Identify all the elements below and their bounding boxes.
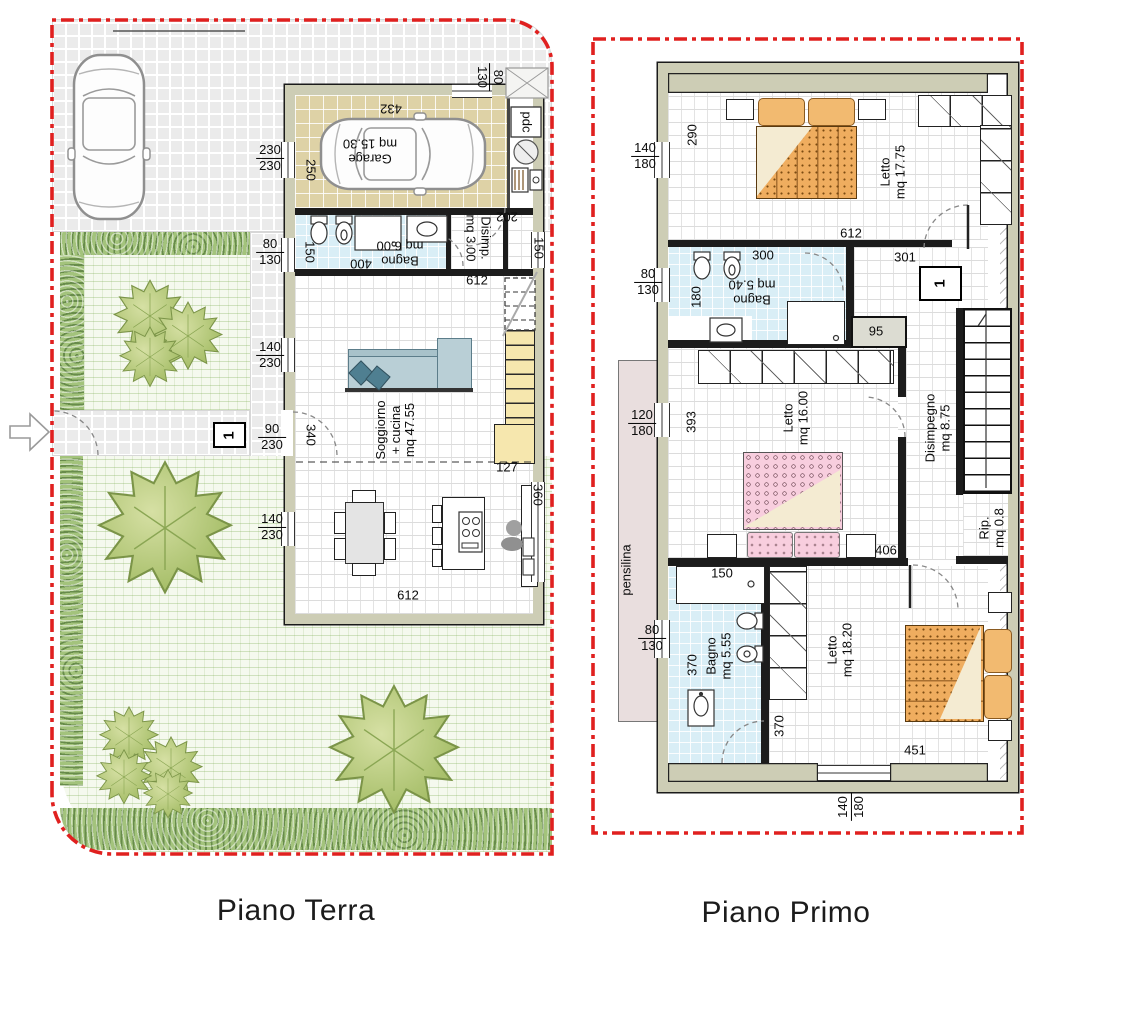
gf-garage-label: Garagemq 15.30 — [343, 136, 397, 165]
gf-wall-bagno-living — [295, 269, 533, 276]
ff-top-wall-band — [668, 73, 988, 93]
dim-ff-room3-width: 451 — [904, 744, 926, 759]
dim-gf-garage-width: 432 — [380, 101, 402, 116]
dim-ff-ward-370: 370 — [773, 715, 788, 737]
ff-pensilina-label: pensilina — [620, 544, 635, 595]
ff-door-number-box: 1 — [919, 266, 962, 301]
room-name: Disimpegno — [923, 394, 938, 463]
gf-kitchen-island — [442, 497, 485, 570]
ground-floor-title: Piano Terra — [217, 894, 375, 928]
dim-ff-win-bottom: 140180 — [836, 793, 866, 821]
dim-ff-room2-depth: 393 — [685, 411, 700, 433]
gf-sofa-chaise — [437, 338, 472, 390]
room-area: mq 17.75 — [893, 145, 908, 199]
gf-chair — [384, 512, 396, 534]
dim-a: 80 — [634, 267, 662, 282]
dim-a: 230 — [256, 143, 284, 158]
floorplan-canvas: 80130 432 230230 250 pdc Garagemq 15.30 … — [0, 0, 1145, 1009]
ff-wall-letto2-south — [668, 558, 908, 566]
dim-b: 230 — [256, 355, 284, 371]
ff-bed3-pillow — [984, 629, 1012, 673]
dim-ff-west2-80-130: 80130 — [638, 623, 666, 653]
dim-b: 180 — [851, 793, 867, 821]
dim-gf-drive-230-230: 230230 — [256, 143, 284, 173]
ff-wall-letto1-south — [668, 240, 952, 247]
gf-pdc-label: pdc — [519, 112, 534, 133]
dim-ff-west-80-130: 80130 — [634, 267, 662, 297]
ff-window-south — [818, 765, 890, 781]
ff-disimpegno-label: Disimpegnomq 8.75 — [923, 394, 952, 463]
dim-ff-room1-depth: 290 — [686, 124, 701, 146]
ff-letto2-wardrobe — [698, 350, 894, 384]
gf-stool — [432, 549, 442, 567]
room-name: Soggiorno — [374, 400, 389, 459]
dim-b: 180 — [628, 423, 656, 439]
dim-a: 80 — [638, 623, 666, 638]
room-area: mq 3.00 — [463, 215, 478, 262]
dim-gf-east-360: 360 — [530, 484, 545, 506]
gf-chair — [352, 563, 376, 576]
room-name: Rip. — [977, 508, 992, 548]
ff-bed2-pillow2 — [794, 532, 840, 558]
dim-ff-406: 406 — [875, 544, 897, 559]
room-area: mq 8.75 — [938, 394, 953, 463]
ff-wall-letto2-corridor-b — [898, 437, 906, 558]
dim-a: 80 — [491, 63, 506, 91]
room-area: mq 5.40 — [729, 277, 776, 292]
room-area: mq 47.55 — [403, 400, 418, 459]
dim-ff-612: 612 — [840, 227, 862, 242]
dim-b: 130 — [475, 63, 491, 91]
dim-gf-612-bottom: 612 — [397, 589, 419, 604]
ff-bagno1-sink-zone — [668, 316, 752, 342]
ff-letto3-label: Lettomq 18.20 — [825, 623, 854, 677]
dim-b: 230 — [258, 437, 286, 453]
ff-wall-letto2-corridor-a — [898, 348, 906, 397]
dim-a: 90 — [258, 422, 286, 437]
ff-letto3-wardrobe — [769, 566, 807, 700]
gf-disimpegno-label: Disimp.mq 3.00 — [463, 215, 492, 262]
gf-wall-garage-pdc — [507, 95, 510, 208]
room-area: mq 18.20 — [840, 623, 855, 677]
ff-bagno1-shower — [787, 301, 845, 345]
dim-ff-win-140-180: 140180 — [631, 141, 659, 171]
ff-bagno1-label: Bagnomq 5.40 — [729, 277, 776, 306]
room-area: mq 16.00 — [796, 391, 811, 445]
ff-window-west-letto2 — [654, 403, 670, 437]
dim-gf-west-80-130: 80130 — [256, 237, 284, 267]
dim-gf-door-90-230: 90230 — [258, 422, 286, 452]
gf-garage-floor — [295, 95, 533, 208]
room-name: Letto — [878, 145, 893, 199]
dim-gf-612-top: 612 — [466, 274, 488, 289]
upper-garden-hedge-top — [60, 232, 250, 255]
ff-wall-rip-south — [956, 556, 1008, 564]
gf-chair — [334, 512, 346, 534]
ff-letto1-wardrobe-top — [918, 95, 1012, 127]
dim-b: 130 — [634, 282, 662, 298]
dim-a: 140 — [258, 512, 286, 527]
ff-bed3-nightstand — [988, 592, 1012, 613]
door-number: 1 — [221, 431, 238, 439]
dim-b: 230 — [256, 158, 284, 174]
ff-bed1-pillow — [758, 98, 805, 126]
ff-bed2-nightstand — [707, 534, 737, 558]
gf-stairs — [505, 330, 535, 434]
door-number: 1 — [932, 279, 949, 287]
gf-chair — [352, 490, 376, 503]
dim-gf-east-150: 150 — [531, 237, 546, 259]
dim-gf-bagno-depth: 150 — [302, 241, 317, 263]
room-name: Disimp. — [478, 215, 493, 262]
room-name: Bagno — [377, 253, 424, 268]
dim-gf-top-80-130: 80130 — [475, 63, 505, 91]
gf-dining-table — [345, 502, 384, 564]
dim-gf-door-340: 340 — [303, 424, 318, 446]
room-area: mq 5.55 — [719, 633, 734, 680]
ff-bed3-pillow2 — [984, 675, 1012, 719]
gf-door-number-box: 1 — [213, 422, 246, 448]
dim-ff-win-120-180: 120180 — [628, 408, 656, 438]
ff-letto2-label: Lettomq 16.00 — [781, 391, 810, 445]
ff-letto1-label: Lettomq 17.75 — [878, 145, 907, 199]
room-area: mq 15.30 — [343, 136, 397, 151]
ff-bed1-nightstand — [726, 99, 754, 120]
gf-stool — [432, 505, 442, 523]
gf-soggiorno-label: Soggiorno+ cucinamq 47.55 — [374, 400, 418, 459]
ff-bed2-pillow — [747, 532, 793, 558]
first-floor-title: Piano Primo — [702, 896, 871, 930]
entrance-arrow-icon — [10, 414, 49, 450]
dim-gf-win-140-230: 140230 — [256, 340, 284, 370]
dim-gf-garage-depth: 250 — [303, 159, 318, 181]
dim-a: 140 — [256, 340, 284, 355]
ff-bagno2-label: Bagnomq 5.55 — [704, 633, 733, 680]
dim-b: 130 — [638, 638, 666, 654]
dim-gf-disimp-width: 202 — [496, 209, 518, 224]
gf-chair — [334, 538, 346, 560]
room-area: mq 6.00 — [377, 238, 424, 253]
dim-a: 120 — [628, 408, 656, 423]
room-name: Letto — [781, 391, 796, 445]
dim-a: 140 — [836, 793, 851, 821]
ff-rip-label: Rip.mq 0.8 — [977, 508, 1006, 548]
dim-ff-301: 301 — [894, 251, 916, 266]
gf-sofa-base — [345, 388, 473, 392]
dim-b: 230 — [258, 527, 286, 543]
ff-letto1-wardrobe-side — [980, 125, 1012, 225]
gf-bagno-label: Bagnomq 6.00 — [377, 238, 424, 267]
ff-bed1-nightstand2 — [858, 99, 886, 120]
dim-ff-shower-150: 150 — [711, 567, 733, 582]
room-name: Letto — [825, 623, 840, 677]
dim-ff-bagno2-depth: 370 — [686, 654, 701, 676]
dim-a: 140 — [631, 141, 659, 156]
dim-gf-win2-140-230: 140230 — [258, 512, 286, 542]
upper-garden-hedge-left — [60, 255, 84, 410]
dim-ff-bagno-width: 300 — [752, 249, 774, 264]
dim-ff-niche-95: 95 — [869, 325, 883, 340]
gf-stool — [432, 527, 442, 545]
gf-chair — [384, 538, 396, 560]
dim-ff-bagno-depth: 180 — [690, 286, 705, 308]
dim-gf-stair-127: 127 — [496, 461, 518, 476]
room-area: mq 0.8 — [992, 508, 1007, 548]
gf-stairs-landing — [494, 424, 535, 464]
room-name: Garage — [343, 151, 397, 166]
lower-garden-hedge-bottom — [60, 808, 552, 850]
room-name: Bagno — [729, 292, 776, 307]
dim-gf-bagno-width: 400 — [350, 256, 372, 271]
lower-garden-hedge-left — [60, 456, 83, 786]
dim-b: 130 — [256, 252, 284, 268]
dim-b: 180 — [631, 156, 659, 172]
upper-garden-lawn — [84, 255, 250, 410]
room-name2: + cucina — [389, 400, 404, 459]
ff-stairs — [963, 308, 1012, 494]
ff-bottom-wall-b — [890, 763, 988, 782]
ff-wall-corridor-stairs — [956, 308, 963, 495]
room-name: Bagno — [704, 633, 719, 680]
ff-bed1-pillow2 — [808, 98, 855, 126]
ff-bed2-nightstand2 — [846, 534, 876, 558]
ff-bed3-nightstand2 — [988, 720, 1012, 741]
ff-bottom-wall-a — [668, 763, 818, 782]
dim-a: 80 — [256, 237, 284, 252]
